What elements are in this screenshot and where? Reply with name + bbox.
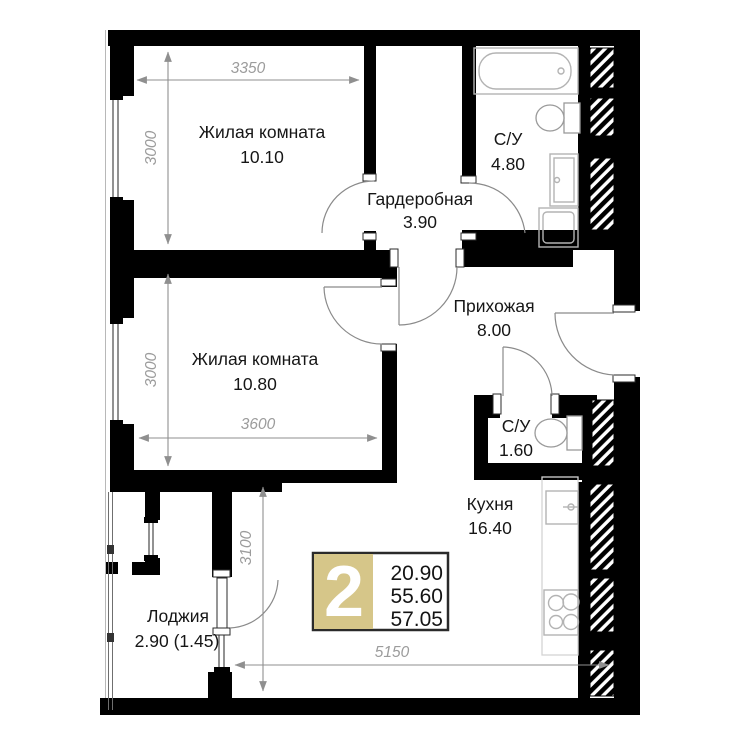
shaft-duct [590,484,614,570]
window-loggia-niche [144,517,158,561]
badge-value-total: 57.05 [390,608,443,631]
wall-top [108,30,640,46]
shaft-duct [590,48,614,88]
wall-bath-bottom [462,230,614,250]
wall-room1-wardrobe [364,46,376,180]
toilet2-icon [535,416,582,450]
room-area-living2: 10.80 [233,374,277,394]
room-area-loggia: 2.90 (1.45) [135,631,220,651]
dim-3350: 3350 [231,60,266,77]
apartment-badge: 2 20.90 55.60 57.05 [313,552,448,632]
room-area-bath1: 4.80 [491,154,525,174]
dim-3000-top: 3000 [143,130,160,165]
room-label-bath2: С/У [502,416,532,436]
wall-balcony [212,483,232,577]
window-room1 [106,94,134,203]
shaft-duct [590,650,614,696]
wall-room2-hall-lower [382,344,397,483]
door-room2 [324,279,396,351]
room-label-living2: Жилая комната [192,349,319,369]
badge-value-living: 20.90 [390,562,443,585]
room-area-living1: 10.10 [240,147,284,167]
dim-3000-bottom: 3000 [143,352,160,387]
wall-bottom [100,698,640,715]
wall-room2-bottom [132,470,282,492]
room-area-wardrobe: 3.90 [403,212,437,232]
room-label-kitchen: Кухня [467,494,514,514]
dim-3100: 3100 [238,530,255,565]
room-label-loggia: Лоджия [147,606,209,626]
fixtures [474,48,582,655]
bathtub-icon [474,48,578,94]
entrance-opening [612,311,642,377]
washbasin-icon [550,154,578,206]
floor-plan: 3350 3000 3000 3600 3100 5150 Жилая комн… [0,0,741,735]
room-area-kitchen: 16.40 [468,518,512,538]
shaft-duct [590,98,614,136]
kitchen-sink-icon [546,491,578,524]
shaft-duct [592,400,614,466]
room-label-living1: Жилая комната [199,122,326,142]
shaft-duct [590,578,614,632]
dim-3600: 3600 [241,416,276,433]
window-room2 [106,318,134,426]
door-balcony [213,570,278,635]
door-bath-1-60 [493,347,559,414]
loggia-glazing [107,492,114,710]
room-label-hallway: Прихожая [453,296,534,316]
room-label-bath1: С/У [494,129,524,149]
dim-5150: 5150 [375,644,410,661]
wall-rooms-divider [110,250,397,278]
stove-icon [544,590,579,635]
room-label-wardrobe: Гардеробная [367,189,473,209]
badge-number: 2 [324,552,364,632]
room-area-bath2: 1.60 [499,440,533,460]
shaft-duct [590,158,614,230]
room-area-hallway: 8.00 [477,320,511,340]
toilet-icon [536,103,580,133]
badge-value-area: 55.60 [390,585,443,608]
wall-left-lower [110,420,134,492]
wall-wardrobe-bottom [460,250,573,267]
wall-left-top [110,30,134,98]
